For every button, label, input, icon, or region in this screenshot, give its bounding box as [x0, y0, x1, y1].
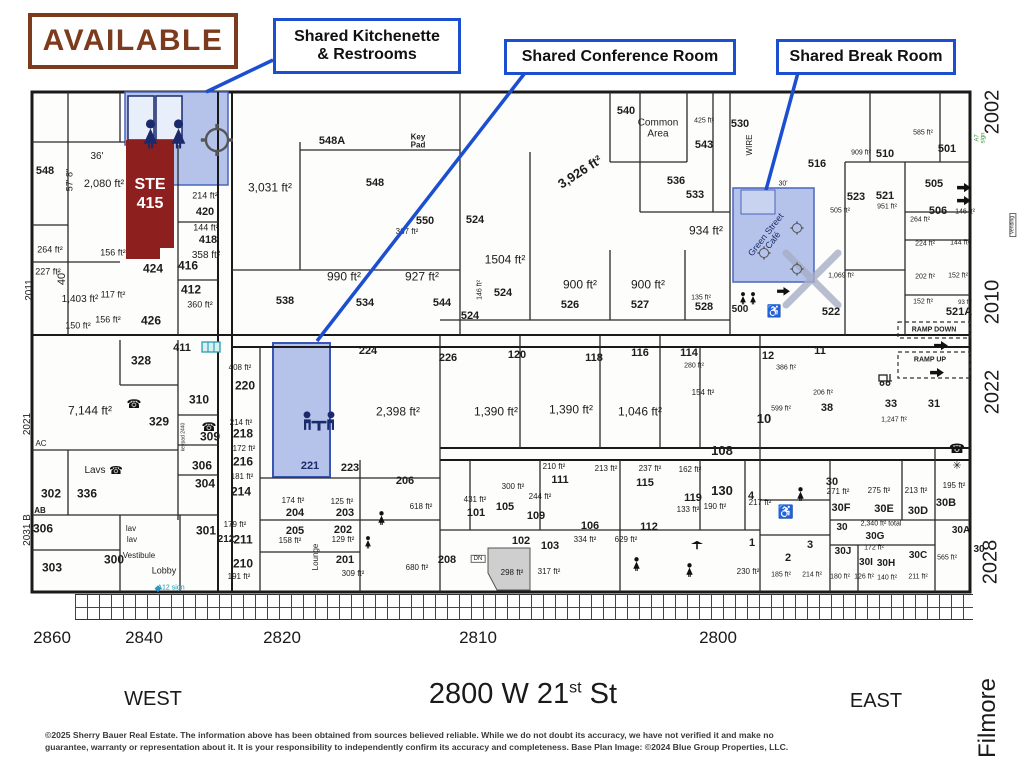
plan-label: 221 [301, 461, 319, 473]
plan-label: 367 ft² [396, 228, 419, 236]
plan-label: 40' [57, 271, 69, 285]
plan-label: 301 [196, 525, 216, 538]
disclaimer-text: ©2025 Sherry Bauer Real Estate. The info… [45, 729, 845, 754]
plan-label: 208 [438, 555, 456, 567]
plan-label: 210 [233, 558, 253, 571]
plan-label: 1,390 ft² [549, 404, 593, 417]
plan-label: Vestibule [123, 552, 155, 560]
plan-label: 900 ft² [631, 279, 665, 292]
plan-label: 180 ft² [830, 573, 850, 580]
plan-label: 523 [847, 192, 865, 204]
plan-label: 306 [33, 523, 53, 536]
plan-label: Lounge [312, 544, 320, 571]
plan-label: 1,390 ft² [474, 406, 518, 419]
plan-label: 30 [836, 523, 847, 534]
plan-label: 174 ft² [282, 497, 305, 505]
plan-label: 2011 [25, 279, 36, 301]
plan-label: Lobby [152, 566, 177, 575]
plan-label: 426 [141, 315, 161, 328]
plan-label: 214 ft² [192, 191, 218, 200]
plan-label: 114 [680, 348, 698, 360]
plan-label: 30H [877, 559, 895, 570]
plan-label: 1 [749, 538, 755, 550]
plan-label: 172 ft² [864, 544, 884, 551]
plan-label: 30D [908, 506, 928, 518]
plan-label: 303 [42, 562, 62, 575]
plan-label: 2010 [983, 280, 1004, 325]
plan-label: 424 [143, 263, 163, 276]
plan-label: 412 [181, 284, 201, 297]
plan-label: 418 [199, 235, 217, 247]
plan-label: 2002 [983, 90, 1004, 135]
plan-label: 105 [496, 502, 514, 514]
plan-label: 500 [732, 305, 749, 316]
callout-conference: Shared Conference Room [504, 39, 736, 75]
plan-label: 408 ft² [229, 364, 252, 372]
plan-label: 201 [336, 555, 354, 567]
wheelchair-icon: ♿ [767, 303, 782, 319]
plan-label: 191 ft² [228, 573, 251, 581]
wheelchair-icon: ♿ [778, 504, 794, 520]
plan-label: 536 [667, 176, 685, 188]
plan-label: 501 [938, 144, 956, 156]
plan-label: 528 [695, 302, 713, 314]
cross-street-name: Filmore [974, 678, 1002, 758]
spark-icon: ✳ [952, 457, 961, 473]
plan-label: 129 ft² [332, 536, 355, 544]
plan-label: 172 ft² [233, 445, 256, 453]
plan-label: 204 [286, 508, 304, 520]
plan-label: 534 [356, 298, 374, 310]
plan-label: 900 ft² [563, 279, 597, 292]
plan-label: 185 ft² [771, 571, 791, 578]
plan-label: keypad 2440 [181, 423, 186, 452]
plan-label: 30I [859, 558, 873, 569]
floor-plan-drawing [0, 0, 1024, 768]
plan-label: 210 ft² [543, 463, 566, 471]
plan-label: 109 [527, 511, 545, 523]
plan-label: 150 ft² [65, 321, 91, 330]
plan-label: Vending [1009, 213, 1016, 237]
street-number: 2840 [125, 628, 163, 648]
sidewalk [75, 594, 973, 620]
plan-label: 540 [617, 106, 635, 118]
plan-label: 309 [200, 431, 220, 444]
plan-label: 31 [928, 399, 940, 411]
plan-label: 220 [235, 380, 255, 393]
plan-label: 38 [821, 403, 833, 415]
plan-label: 195 ft² [943, 482, 966, 490]
street-number: 2800 [699, 628, 737, 648]
plan-label: DN [471, 555, 486, 563]
plan-label: 190 ft² [704, 503, 727, 511]
suite-415-tab [126, 247, 160, 259]
plan-label: 425 ft² [694, 117, 714, 124]
plan-label: 117 ft² [101, 290, 126, 299]
plan-label: 224 [359, 346, 377, 358]
plan-label: 237 ft² [639, 465, 662, 473]
plan-label: 156 ft² [100, 248, 126, 257]
plan-label: 300 ft² [502, 483, 525, 491]
available-badge: AVAILABLE [28, 13, 238, 69]
plan-label: 108 [711, 444, 733, 458]
plan-label: 618 ft² [410, 503, 433, 511]
plan-label: 217 ft² [749, 499, 772, 507]
plan-label: 144 ft² [193, 223, 219, 232]
street-number: 2810 [459, 628, 497, 648]
plan-label: 214 [231, 486, 251, 499]
plan-label: WIRE [746, 135, 754, 156]
plan-label: 120 [508, 350, 526, 362]
plan-label: 57' 8" [65, 169, 74, 191]
plan-label: 152 ft² [913, 298, 933, 305]
plan-label: 30C [909, 551, 927, 562]
plan-label: 310 [189, 394, 209, 407]
plan-label: 181 ft² [231, 473, 254, 481]
plan-label: Key Pad [411, 134, 426, 151]
plan-label: 33 [885, 399, 897, 411]
plan-label: 1,046 ft² [618, 406, 662, 419]
plan-label: 2,080 ft² [84, 179, 124, 191]
plan-label: 115 [636, 478, 654, 490]
plan-label: 211 [233, 534, 252, 547]
street-name-pre: 2800 W 21 [429, 678, 569, 710]
plan-label: 30B [936, 498, 956, 510]
plan-label: 516 [808, 159, 826, 171]
plan-label: 306 [192, 460, 212, 473]
compass-west: WEST [124, 688, 182, 711]
plan-label: 30E [874, 504, 894, 516]
street-name-post: St [582, 678, 617, 710]
plan-label: 116 [631, 348, 649, 360]
plan-label: Lavs [84, 466, 105, 477]
floor-plan-page: STE 415 AVAILABLE Shared Kitchenette & R… [0, 0, 1024, 768]
plan-label: 328 [131, 355, 151, 368]
plan-label: 629 ft² [615, 536, 638, 544]
plan-label: 506 [929, 206, 947, 218]
plan-label: 206 ft² [813, 389, 833, 396]
plan-label: 280 ft² [684, 362, 704, 369]
plan-label: 7,144 ft² [68, 405, 112, 418]
plan-label: 909 ft² [851, 149, 871, 156]
plan-label: 530 [731, 119, 749, 131]
plan-label: 264 ft² [910, 216, 930, 223]
plan-label: 386 ft² [776, 364, 796, 371]
compass-east: EAST [850, 690, 902, 713]
plan-label: 524 [461, 311, 479, 323]
plan-label: 212 [218, 535, 235, 546]
plan-label: 214 ft² [802, 571, 822, 578]
plan-label: 11 [814, 346, 826, 358]
plan-label: lav [126, 525, 136, 533]
plan-label: 224 ft² [915, 240, 935, 247]
plan-label: 2031 B [23, 514, 34, 546]
plan-label: 152 ft² [948, 272, 968, 279]
plan-label: 144 ft² [950, 239, 970, 246]
plan-label: Common Area [638, 119, 679, 140]
plan-label: 533 [686, 190, 704, 202]
plan-label: 309 ft² [342, 570, 365, 578]
plan-label: 927 ft² [405, 271, 439, 284]
plan-label: 126 ft² [854, 573, 874, 580]
plan-label: 158 ft² [279, 537, 302, 545]
plan-label: 112 [640, 522, 658, 534]
plan-label: 213 ft² [905, 487, 928, 495]
plan-label: 226 [439, 353, 457, 365]
plan-label: 510 [876, 149, 894, 161]
plan-label: 585 ft² [913, 129, 933, 136]
plan-label: RAMP UP [914, 356, 946, 363]
plan-label: 101 [467, 508, 485, 520]
plan-label: 12 [762, 351, 774, 363]
plan-label: 146 ft² [476, 280, 483, 300]
plan-label: 2 [785, 553, 791, 565]
plan-label: 2,398 ft² [376, 406, 420, 419]
plan-label: 304 [195, 478, 215, 491]
plan-label: 119 [684, 493, 702, 505]
plan-label: 416 [178, 260, 198, 273]
plan-label: 2021 [23, 413, 34, 435]
plan-label: 302 [41, 488, 61, 501]
plan-label: 521 [876, 191, 894, 203]
plan-label: 130 [711, 484, 733, 498]
disclaimer-line-2: guarantee, warranty or representation ab… [45, 741, 845, 753]
plan-label: 154 ft² [692, 389, 715, 397]
plan-label: 203 [336, 508, 354, 520]
plan-label: 317 ft² [538, 568, 561, 576]
plan-label: 111 [551, 475, 568, 487]
plan-label: 30J [835, 547, 852, 558]
plan-label: 275 ft² [868, 487, 891, 495]
plan-label: 1,247 ft² [881, 416, 907, 423]
plan-label: 271 ft² [827, 488, 850, 496]
sidewalk-midline [75, 607, 973, 608]
plan-label: 118 [585, 353, 603, 365]
plan-label: 934 ft² [689, 225, 723, 238]
plan-label: A7 sign [975, 132, 988, 143]
suite-415-block: STE 415 [126, 140, 174, 248]
street-name: 2800 W 21st St [429, 678, 617, 711]
plan-label: 1,403 ft² [62, 295, 99, 306]
plan-label: 30F [832, 503, 851, 515]
phone-icon: ☎ [949, 441, 965, 457]
plan-label: 30G [866, 532, 885, 543]
plan-label: 543 [695, 140, 713, 152]
plan-label: 505 [925, 179, 943, 191]
plan-label: 230 ft² [737, 568, 760, 576]
plan-label: 1504 ft² [485, 254, 526, 267]
plan-label: 30A [952, 526, 970, 537]
plan-label: 334 ft² [574, 536, 597, 544]
street-number: 2860 [33, 628, 71, 648]
plan-label: 329 [149, 416, 169, 429]
plan-label: 599 ft² [771, 405, 791, 412]
plan-label: 431 ft² [464, 496, 487, 504]
plan-label: 216 [233, 456, 253, 469]
plan-label: 298 ft² [501, 569, 524, 577]
plan-label: 103 [541, 541, 559, 553]
plan-label: 133 ft² [677, 506, 700, 514]
plan-label: 146 ft² [955, 208, 975, 215]
plan-label: 360 ft² [187, 300, 213, 309]
plan-label: 527 [631, 300, 649, 312]
plan-label: 156 ft² [95, 315, 121, 324]
plan-label: 544 [433, 298, 451, 310]
plan-label: 179 ft² [224, 521, 247, 529]
plan-label: 548A [319, 136, 345, 148]
plan-label: 538 [276, 296, 294, 308]
plan-label: 264 ft² [37, 245, 63, 254]
plan-label: A12 sign [157, 584, 184, 591]
plan-label: 300 [104, 554, 124, 567]
plan-label: 548 [366, 178, 384, 190]
plan-label: 565 ft² [937, 554, 957, 561]
plan-label: 521A [946, 307, 972, 319]
plan-label: 505 ft² [830, 207, 850, 214]
street-name-sup: st [569, 679, 581, 696]
plan-label: 211 ft² [908, 573, 927, 580]
plan-label: 680 ft² [406, 564, 429, 572]
plan-label: 548 [36, 166, 54, 178]
plan-label: 213 ft² [595, 465, 618, 473]
plan-label: 162 ft² [679, 466, 702, 474]
plan-label: 30 [973, 545, 984, 556]
plan-label: 951 ft² [877, 203, 897, 210]
plan-label: 218 [233, 428, 253, 441]
plan-label: 102 [512, 536, 530, 548]
plan-label: 125 ft² [331, 498, 354, 506]
plan-label: 135 ft² [691, 294, 711, 301]
plan-label: 411 [173, 343, 191, 355]
plan-label: 3 [807, 540, 813, 552]
plan-label: 140 ft² [877, 574, 897, 581]
plan-label: 2,340 ft² total [861, 520, 902, 527]
plan-label: 223 [341, 463, 359, 475]
plan-label: 106 [581, 521, 599, 533]
plan-label: 990 ft² [327, 271, 361, 284]
plan-label: 244 ft² [529, 493, 552, 501]
callout-break-room: Shared Break Room [776, 39, 956, 75]
plan-label: AB [34, 507, 46, 515]
plan-label: 202 ft² [915, 273, 935, 280]
plan-label: 524 [466, 215, 484, 227]
plan-label: 2022 [983, 370, 1004, 415]
plan-label: 524 [494, 288, 512, 300]
plan-label: 93 ft² [958, 300, 972, 306]
plan-label: 30' [778, 180, 787, 187]
plan-label: 420 [196, 207, 214, 219]
plan-label: 1,069 ft² [828, 272, 854, 279]
disclaimer-line-1: ©2025 Sherry Bauer Real Estate. The info… [45, 729, 845, 741]
plan-label: 336 [77, 488, 97, 501]
street-number: 2820 [263, 628, 301, 648]
phone-icon: ☎ [127, 396, 142, 412]
plan-label: 36' [90, 152, 103, 163]
phone-icon: ☎ [109, 462, 123, 478]
break-room-inner [741, 190, 775, 214]
plan-label: AC [35, 440, 46, 448]
plan-label: 206 [396, 476, 414, 488]
plan-label: lav [127, 536, 137, 544]
plan-label: RAMP DOWN [912, 326, 957, 333]
callout-kitchenette: Shared Kitchenette & Restrooms [273, 18, 461, 74]
plan-label: 526 [561, 300, 579, 312]
plan-label: 3,031 ft² [248, 182, 292, 195]
plan-label: 10 [757, 412, 771, 426]
plan-label: 522 [822, 307, 840, 319]
